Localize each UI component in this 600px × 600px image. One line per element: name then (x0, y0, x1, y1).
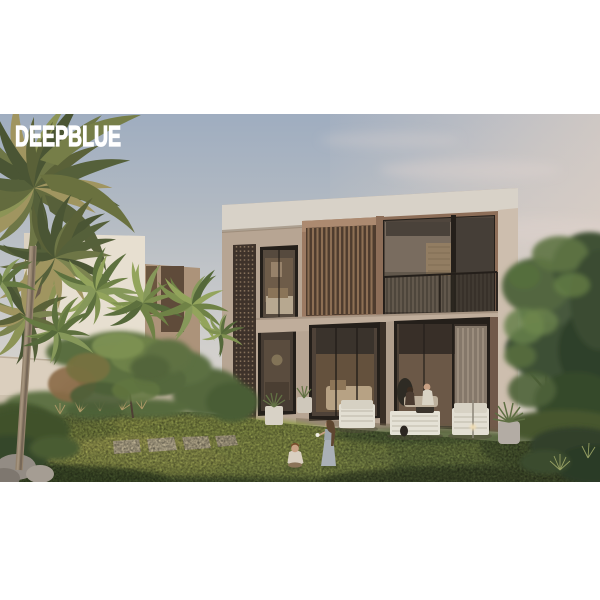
svg-text:DEEPBLUE: DEEPBLUE (15, 121, 121, 153)
